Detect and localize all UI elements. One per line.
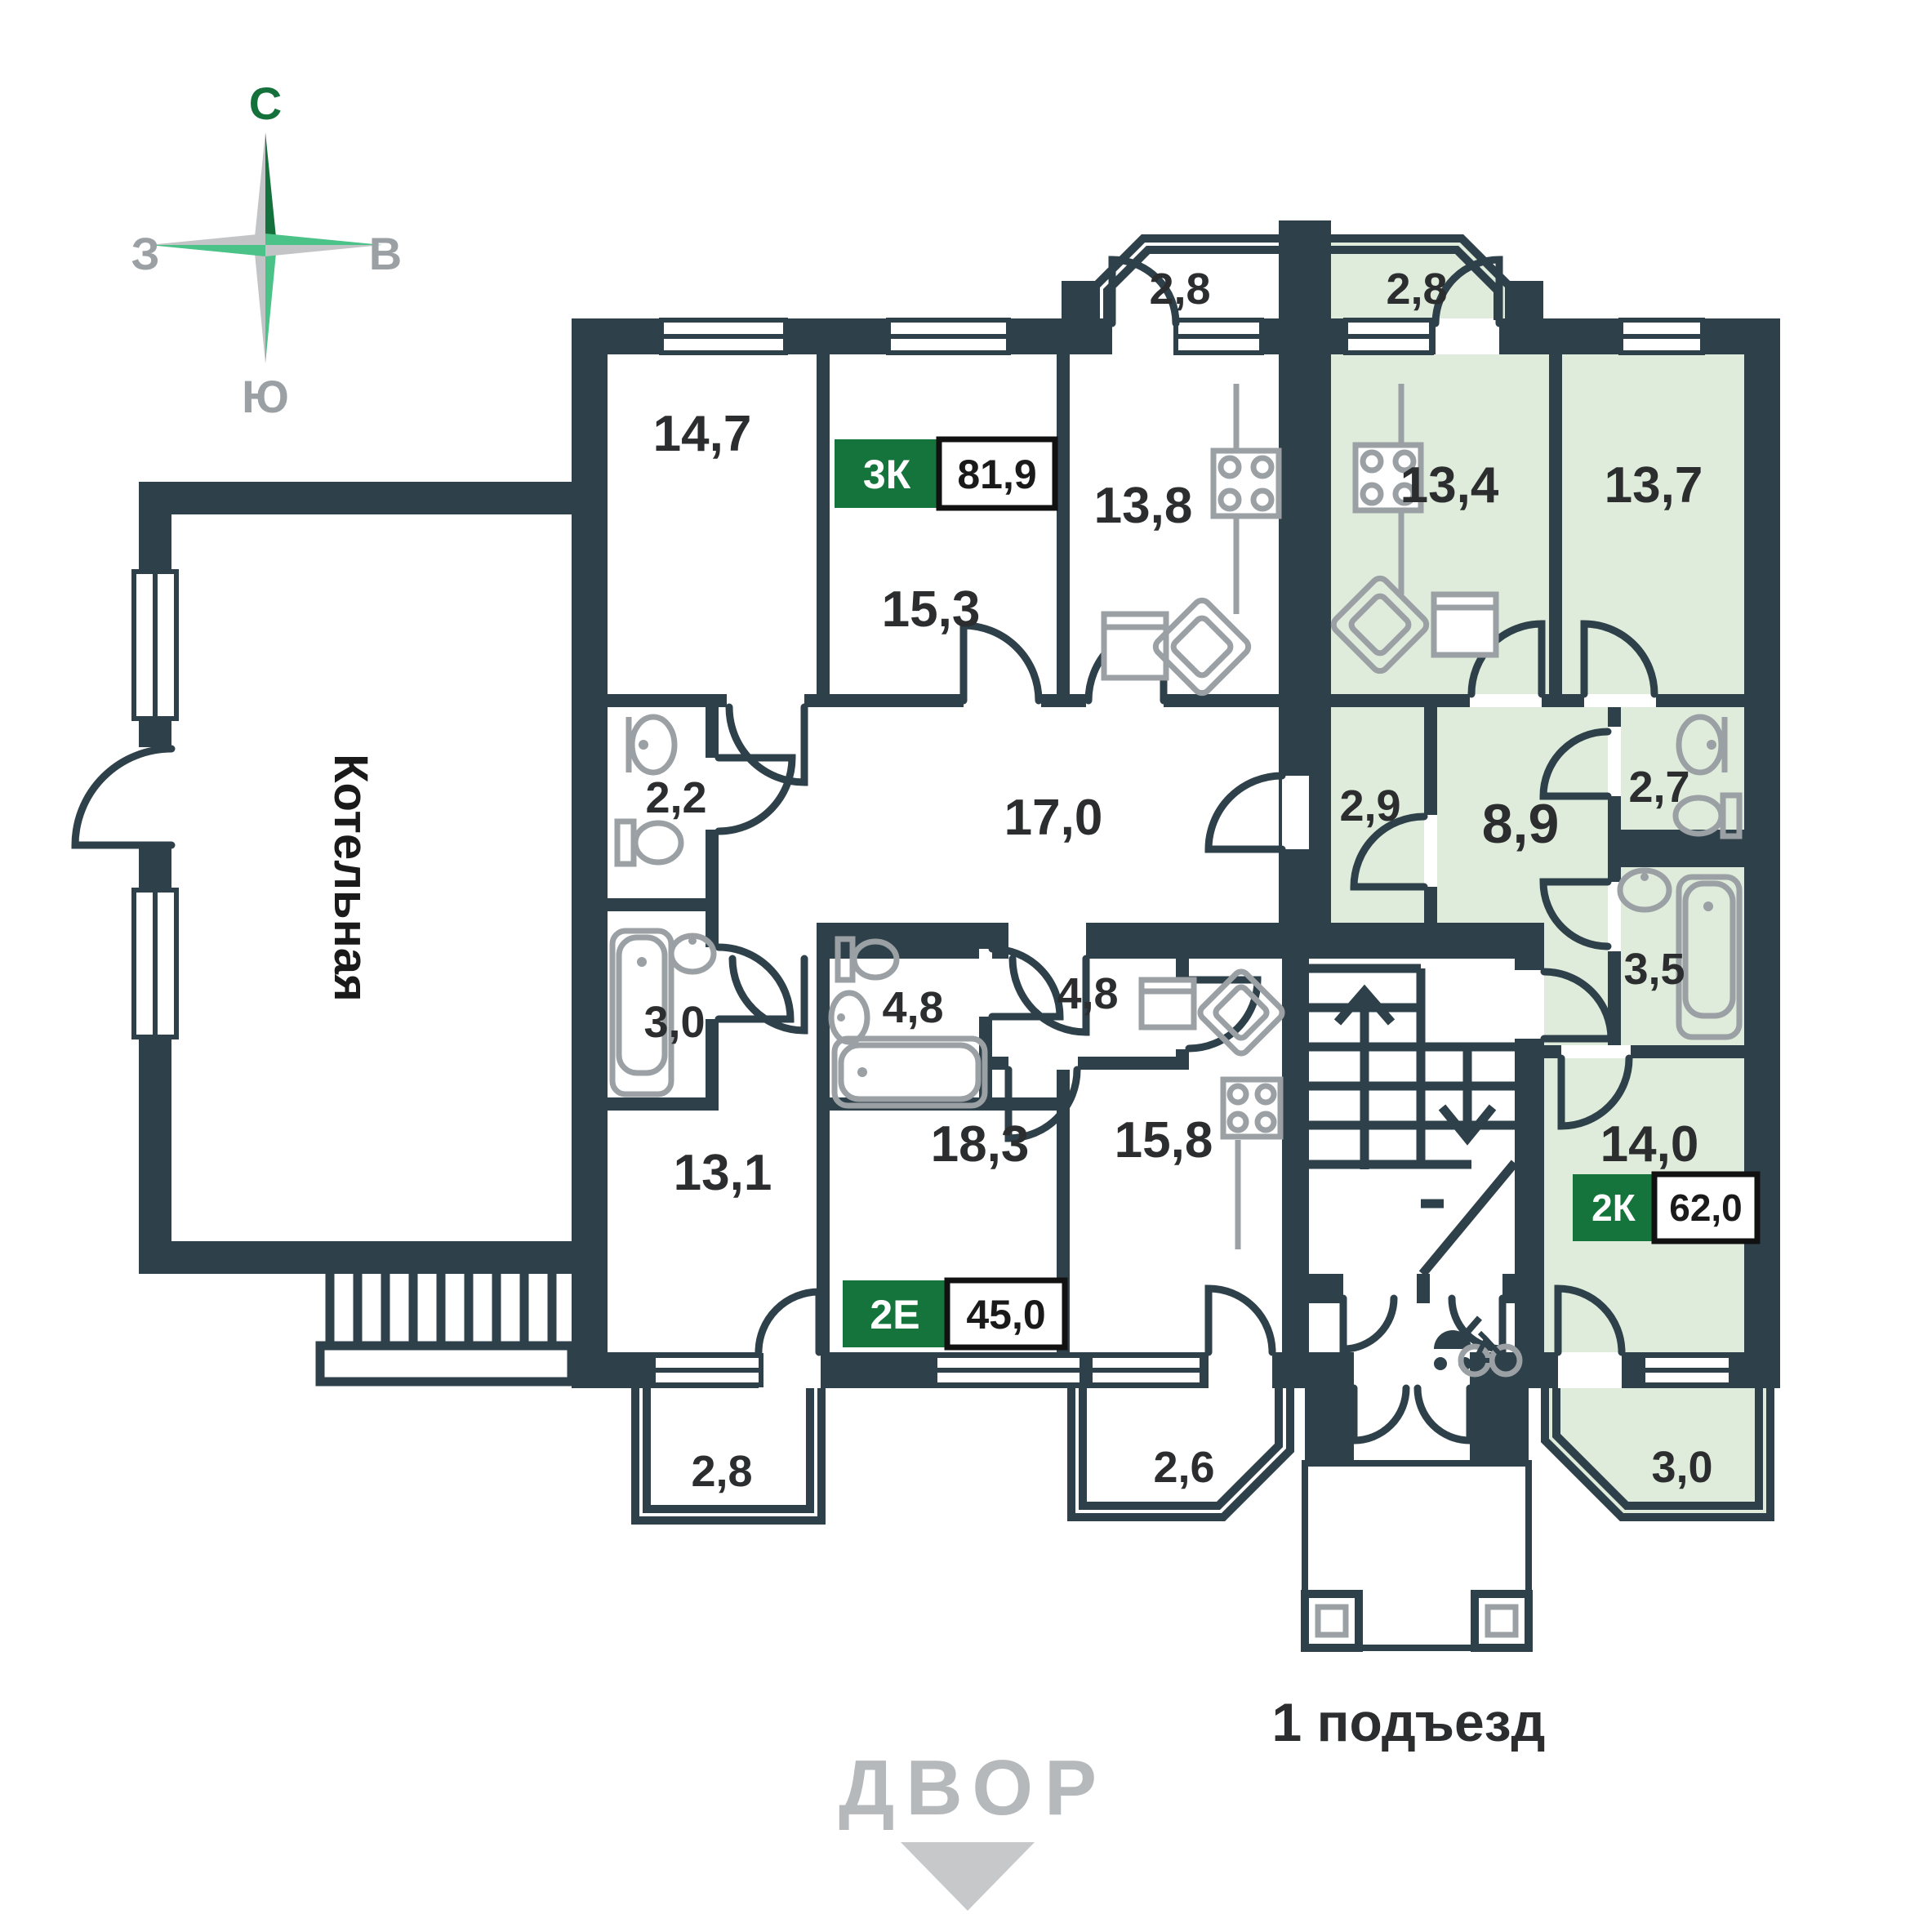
boiler-room: Котельная xyxy=(75,482,572,1382)
external-stair xyxy=(320,1274,572,1382)
compass-east-label: В xyxy=(369,228,402,279)
badge-2k-area: 62,0 xyxy=(1669,1186,1743,1229)
fridge-icon xyxy=(1434,594,1496,655)
apartment-badge-2k: 2К 62,0 xyxy=(1573,1174,1757,1241)
room-3-5-area: 3,5 xyxy=(1623,945,1685,994)
stove-icon xyxy=(1213,451,1279,516)
compass-rose-icon: С З В Ю xyxy=(131,78,402,422)
room-4-8-bath-area: 4,8 xyxy=(882,983,943,1032)
compass-south-label: Ю xyxy=(242,371,289,422)
room-13-4-area: 13,4 xyxy=(1400,457,1499,514)
room-15-3-area: 15,3 xyxy=(882,581,981,638)
boiler-window-1 xyxy=(134,572,176,719)
badge-2e-area: 45,0 xyxy=(966,1292,1045,1338)
room-fills xyxy=(572,238,1780,1517)
apartment-badge-3k: 3К 81,9 xyxy=(835,439,1055,508)
porch-column-right xyxy=(1475,1594,1529,1648)
room-2-7-area: 2,7 xyxy=(1628,763,1689,812)
room-13-4-13-7-fill xyxy=(1331,354,1744,707)
room-13-8-area: 13,8 xyxy=(1094,478,1193,534)
apartment-badge-2e: 2Е 45,0 xyxy=(843,1280,1065,1347)
compass-west-label: З xyxy=(131,228,159,279)
balcony-bottom-left-area: 2,8 xyxy=(691,1447,752,1496)
room-4-8-hall-area: 4,8 xyxy=(1057,969,1118,1018)
floor-plan: С З В Ю xyxy=(0,0,1932,1932)
badge-3k-area: 81,9 xyxy=(957,452,1036,497)
balcony-top-left-area: 2,8 xyxy=(1149,265,1210,314)
yard-arrow-icon xyxy=(901,1842,1035,1911)
porch-column-left xyxy=(1305,1594,1359,1648)
yard-label: ДВОР xyxy=(839,1744,1108,1832)
room-8-9-area: 8,9 xyxy=(1482,793,1560,855)
boiler-window-2 xyxy=(134,890,176,1037)
badge-3k-type: 3К xyxy=(863,452,911,497)
balcony-top-right-area: 2,8 xyxy=(1386,265,1447,314)
entrance-label: 1 подъезд xyxy=(1272,1692,1546,1752)
room-14-0-area: 14,0 xyxy=(1600,1116,1699,1173)
compass-north-label: С xyxy=(249,78,282,129)
fridge-icon xyxy=(1142,980,1194,1027)
badge-2e-type: 2Е xyxy=(870,1292,919,1338)
vestibule-door-post xyxy=(1417,1274,1430,1303)
badge-2k-type: 2К xyxy=(1591,1186,1636,1229)
room-13-1-area: 13,1 xyxy=(674,1145,772,1201)
room-14-7-area: 14,7 xyxy=(653,406,752,462)
room-2-9-area: 2,9 xyxy=(1339,781,1400,830)
room-18-3-area: 18,3 xyxy=(931,1116,1030,1173)
balcony-bottom-right-area: 3,0 xyxy=(1651,1443,1712,1492)
stove-icon xyxy=(1223,1080,1280,1137)
room-13-7-area: 13,7 xyxy=(1605,457,1703,514)
entrance-porch xyxy=(1305,1388,1529,1648)
room-17-0-area: 17,0 xyxy=(1004,790,1103,846)
room-3-0-area: 3,0 xyxy=(643,998,705,1047)
room-15-8-area: 15,8 xyxy=(1115,1112,1213,1169)
boiler-room-label: Котельная xyxy=(324,754,377,1002)
room-2-2-area: 2,2 xyxy=(645,773,706,822)
balcony-bottom-mid-area: 2,6 xyxy=(1153,1443,1214,1492)
